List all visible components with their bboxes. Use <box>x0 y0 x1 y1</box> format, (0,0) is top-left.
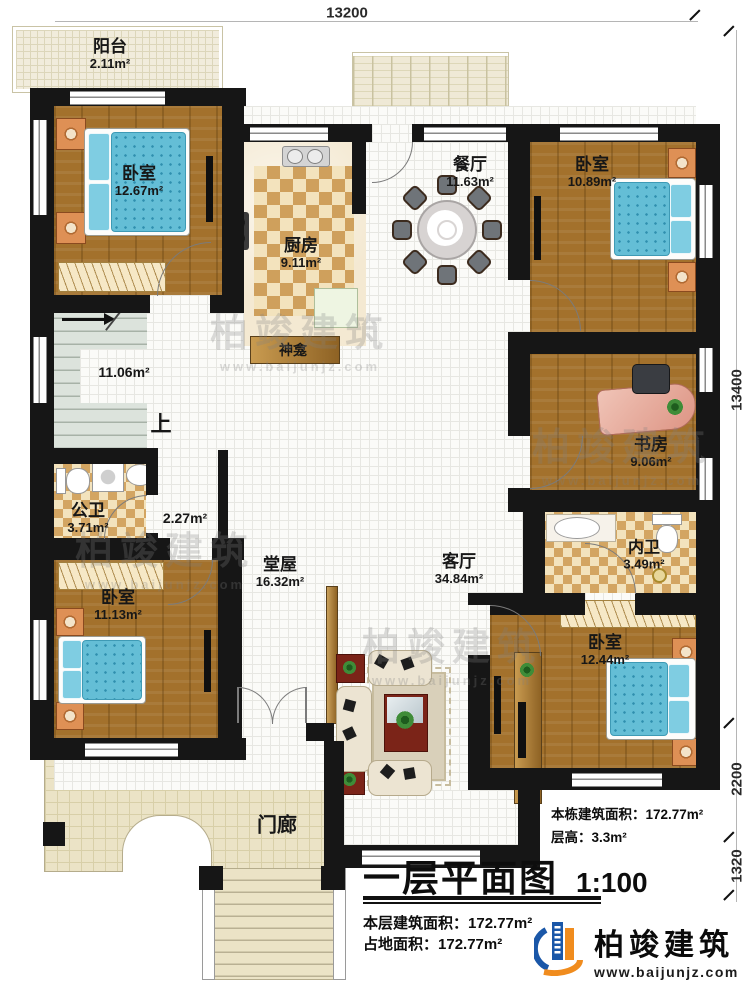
room-name: 堂屋 <box>256 555 304 575</box>
bed-pillow <box>88 133 110 181</box>
room-name: 厨房 <box>281 236 321 256</box>
floor-area-line: 本层建筑面积：172.77m² <box>363 912 532 933</box>
porch-column <box>43 822 65 846</box>
room-label-study: 书房 9.06m² <box>630 435 671 469</box>
title-underline-thin <box>363 902 601 904</box>
wall-segment <box>222 723 238 741</box>
room-label-porch: 门廊 <box>257 815 297 838</box>
bed-pillow <box>668 700 690 734</box>
room-name: 卧室 <box>581 633 629 653</box>
room-name: 卧室 <box>568 155 616 175</box>
room-area: 11.63m² <box>446 174 494 189</box>
bed-pillow <box>88 183 110 231</box>
window <box>33 337 47 403</box>
toilet <box>66 468 90 494</box>
window <box>33 120 47 215</box>
room-label-corridor: 2.27m² <box>163 510 207 526</box>
tv <box>494 676 501 734</box>
room-label-bedroom-tl: 卧室 12.67m² <box>115 164 163 198</box>
tv <box>204 630 211 692</box>
window <box>699 185 713 258</box>
wall-segment <box>523 512 545 593</box>
room-label-dining: 餐厅 11.63m² <box>446 155 494 189</box>
floor-plan: 13200 13400 2200 1320 <box>0 0 750 992</box>
room-label-inner-bath: 内卫 3.49m² <box>623 539 664 572</box>
note-value: 172.77m² <box>646 807 704 822</box>
info-value: 172.77m² <box>468 915 532 932</box>
floor-height-note: 层高：3.3m² <box>551 826 627 846</box>
plant <box>342 660 357 675</box>
desk-chair <box>632 364 670 394</box>
bed-pillow <box>670 220 692 254</box>
sink-basin <box>287 149 303 164</box>
porch-column <box>199 866 223 890</box>
dimension-tick <box>689 9 701 21</box>
room-name: 内卫 <box>623 539 664 557</box>
sofa <box>368 760 432 796</box>
window <box>699 348 713 392</box>
porch-cutout <box>122 815 212 872</box>
room-area: 3.71m² <box>67 520 108 535</box>
room-area: 12.44m² <box>581 652 629 667</box>
room-area: 2.11m² <box>90 56 130 71</box>
tv <box>518 702 526 758</box>
plant <box>519 662 535 678</box>
wall-segment <box>508 354 530 436</box>
note-label: 本栋建筑面积： <box>551 807 646 822</box>
wall-segment <box>508 124 530 280</box>
bed-mattress <box>614 182 670 256</box>
footprint-line: 占地面积：172.77m² <box>363 933 502 954</box>
washing-machine <box>92 462 124 492</box>
room-name: 客厅 <box>435 552 483 572</box>
dimension-line-top <box>55 21 698 22</box>
wall-segment <box>468 593 490 605</box>
brand-name: 柏竣建筑 <box>594 920 739 964</box>
stairs-up-label: 上 <box>151 413 172 437</box>
dining-chair <box>482 220 502 240</box>
brand-url: www.baijunjz.com <box>594 964 739 980</box>
stair-arrow <box>62 318 106 321</box>
window <box>33 620 47 700</box>
room-label-bedroom-bl: 卧室 11.13m² <box>94 588 142 622</box>
wall-segment <box>54 295 150 313</box>
building-area-note: 本栋建筑面积：172.77m² <box>551 803 703 823</box>
room-label-kitchen: 厨房 9.11m² <box>281 236 321 270</box>
bed-pillow <box>62 670 82 699</box>
room-area: 34.84m² <box>435 571 483 586</box>
room-name: 书房 <box>630 435 671 455</box>
nightstand <box>668 148 696 178</box>
dimension-tick <box>723 717 735 729</box>
dining-chair <box>437 265 457 285</box>
window <box>250 127 328 141</box>
note-value: 3.3m² <box>592 830 627 845</box>
room-label-public-bath: 公卫 3.71m² <box>67 501 108 535</box>
window <box>70 91 165 105</box>
bed-mattress <box>82 640 142 700</box>
fridge <box>314 288 358 328</box>
dimension-tick <box>723 889 735 901</box>
dimension-label-right-lower: 1320 <box>729 849 746 882</box>
tv <box>206 156 213 222</box>
living-floor-lower <box>344 790 518 845</box>
window <box>85 743 178 757</box>
room-area: 16.32m² <box>256 574 304 589</box>
nightstand <box>56 702 84 730</box>
room-name: 阳台 <box>90 37 130 57</box>
dimension-tick <box>723 831 735 843</box>
sink <box>554 517 600 539</box>
plant <box>395 710 415 730</box>
room-area: 12.67m² <box>115 183 163 198</box>
note-label: 层高： <box>551 830 592 845</box>
wall-segment <box>212 538 244 560</box>
room-label-stair-hall: 11.06m² <box>98 364 149 380</box>
brand-block: 柏竣建筑 www.baijunjz.com <box>534 918 739 981</box>
room-label-shrine: 神龛 <box>279 342 307 358</box>
wall-segment <box>222 106 244 313</box>
dining-door-threshold <box>372 124 412 142</box>
sofa-pillow <box>403 767 416 780</box>
room-name: 公卫 <box>67 501 108 521</box>
room-name: 卧室 <box>94 588 142 608</box>
wall-segment <box>508 490 720 512</box>
info-label: 本层建筑面积： <box>363 915 468 932</box>
title-underline <box>363 896 601 900</box>
wall-segment <box>146 448 158 495</box>
room-label-bedroom-tr: 卧室 10.89m² <box>568 155 616 189</box>
window <box>699 458 713 500</box>
room-label-living: 客厅 34.84m² <box>435 552 483 586</box>
room-name: 餐厅 <box>446 155 494 175</box>
room-area: 9.06m² <box>630 454 671 469</box>
bed-pillow <box>670 184 692 218</box>
room-area: 3.49m² <box>623 558 664 573</box>
window <box>572 773 662 787</box>
plant <box>666 398 684 416</box>
dimension-label-right-upper: 13400 <box>729 369 746 411</box>
room-area: 11.13m² <box>94 607 142 622</box>
porch-column <box>321 866 345 890</box>
nightstand <box>56 212 86 244</box>
wall-segment <box>352 142 366 214</box>
dimension-tick <box>723 25 735 37</box>
porch-steps <box>213 868 335 980</box>
window <box>424 127 506 141</box>
room-area: 9.11m² <box>281 255 321 270</box>
dining-chair <box>392 220 412 240</box>
wall-segment <box>508 332 720 354</box>
wardrobe <box>58 562 164 590</box>
wardrobe <box>58 262 166 292</box>
room-label-bedroom-br: 卧室 12.44m² <box>581 633 629 667</box>
wall-segment <box>218 450 228 542</box>
nightstand <box>668 262 696 292</box>
dining-table-center <box>437 220 457 240</box>
room-area: 2.27m² <box>163 510 207 526</box>
room-area: 10.89m² <box>568 174 616 189</box>
bed-pillow <box>668 664 690 698</box>
title-row: 一层平面图 1:100 <box>363 848 648 902</box>
sink-basin <box>307 149 323 164</box>
info-label: 占地面积： <box>363 936 438 953</box>
bed-mattress <box>610 662 668 736</box>
room-label-balcony: 阳台 2.11m² <box>90 37 130 71</box>
room-label-hall: 堂屋 16.32m² <box>256 555 304 589</box>
window <box>560 127 658 141</box>
wall-segment <box>635 593 720 615</box>
nightstand <box>56 608 84 636</box>
toilet-tank <box>652 514 682 525</box>
nightstand <box>56 118 86 150</box>
wall-segment <box>30 448 152 464</box>
brand-logo-icon <box>534 918 584 981</box>
plant <box>342 772 357 787</box>
toilet-tank <box>56 468 66 494</box>
dimension-label-right-middle: 2200 <box>729 762 746 795</box>
room-area: 11.06m² <box>98 364 149 380</box>
plan-title: 一层平面图 <box>363 848 558 902</box>
dimension-label-top: 13200 <box>326 5 368 22</box>
room-name: 卧室 <box>115 164 163 184</box>
info-value: 172.77m² <box>438 936 502 953</box>
bed-pillow <box>62 640 82 669</box>
tv <box>534 196 541 260</box>
wall-segment <box>306 723 334 741</box>
wall-segment <box>30 538 170 560</box>
